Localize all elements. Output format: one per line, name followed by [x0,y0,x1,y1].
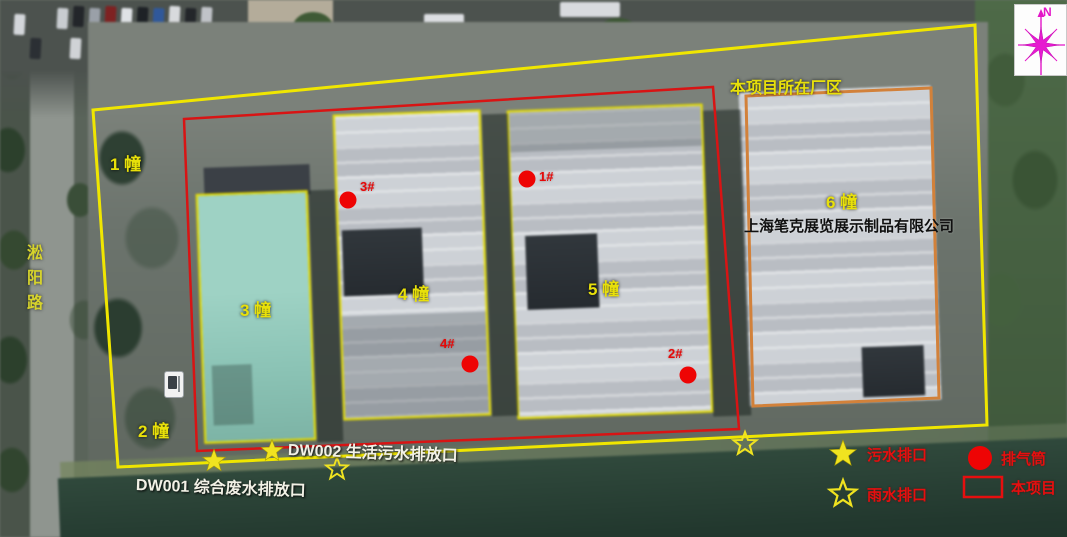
building-5 [507,104,714,420]
building-6-label: 6 幢 [826,188,857,213]
compass-rose: N [1014,4,1067,76]
compass-icon [1015,5,1067,77]
stack-3-label: 3# [360,179,374,194]
red-rect-icon [962,474,1004,500]
building-5-label: 5 幢 [588,275,619,300]
site-area-label: 本项目所在厂区 [730,74,842,98]
building-6 [739,86,942,407]
building-2-label: 2 幢 [138,417,169,442]
legend-item-stack: 排气筒 [966,444,1046,472]
car [69,38,81,60]
legend-item-rainwater: 雨水排口 [826,477,927,511]
building-3-label: 3 幢 [240,296,271,321]
legend-label-stack: 排气筒 [1001,448,1046,469]
road-label: 淞阳路 [20,244,44,319]
yard-trees [92,118,202,463]
roof-shadow [342,311,489,418]
stack-1-label: 1# [539,169,553,184]
hollow-star-icon [826,477,860,511]
car [13,14,25,36]
legend-label-project: 本项目 [1011,477,1056,498]
building-4-label: 4 幢 [398,280,429,305]
car [29,38,41,60]
legend-item-project: 本项目 [962,474,1056,500]
car [56,8,68,30]
stack-4-label: 4# [440,336,454,351]
building-4 [333,110,492,421]
legend-label-rainwater: 雨水排口 [867,484,927,505]
legend-item-sewage: 污水排口 [826,437,927,471]
stack-2-label: 2# [668,346,682,361]
truck [560,2,620,17]
legend-label-sewage: 污水排口 [867,444,927,465]
building-1-label: 1 幢 [110,150,141,175]
roof-shadow [509,106,702,153]
car [72,6,84,28]
satellite-map: 淞阳路 1 幢 2 幢 3 幢 4 幢 5 幢 6 幢 本项目所在厂区 上海笔克… [0,0,1067,537]
filled-star-icon [826,437,860,471]
red-circle-icon [966,444,994,472]
compass-north-label: N [1043,5,1052,19]
company-name: 上海笔克展览展示制品有限公司 [744,215,954,236]
roof-shadow [212,364,254,425]
roof-dark-section [862,345,926,397]
gas-pump-icon [164,371,184,398]
